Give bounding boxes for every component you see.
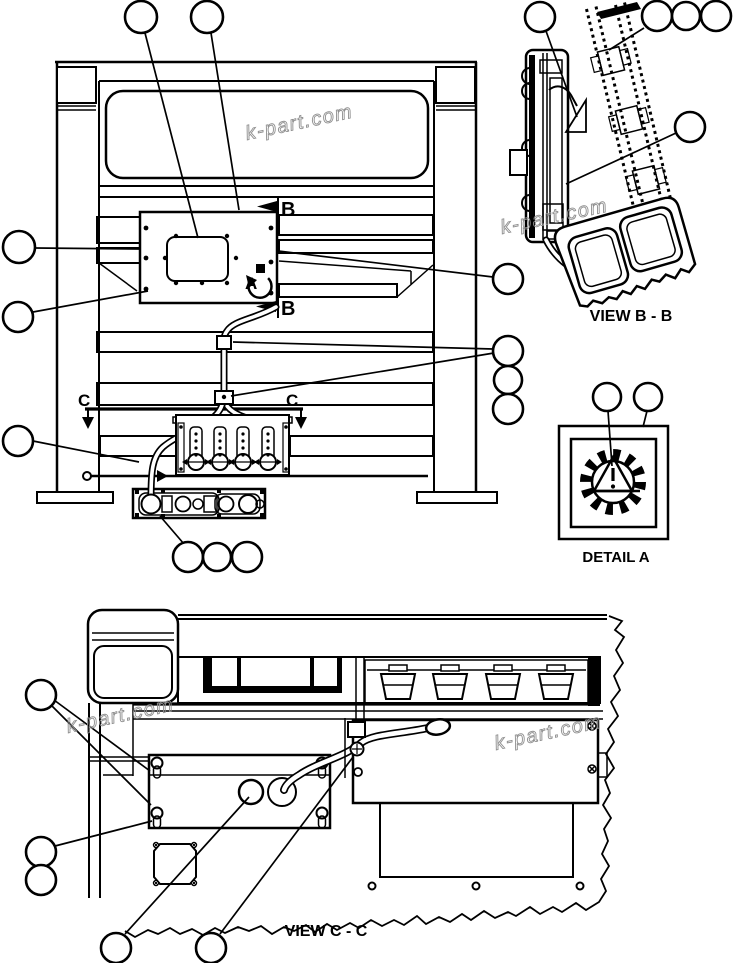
callout-balloon[interactable] [173, 542, 203, 572]
cc-plate-hole [239, 780, 263, 804]
cc-right-panel [353, 720, 607, 890]
gear-warning-symbol [586, 455, 640, 509]
rail-right-3 [279, 284, 397, 297]
rail-right-1 [279, 215, 433, 235]
view-bb: VIEW B - B [510, 2, 698, 325]
lower-rail-right [290, 436, 433, 456]
rail-left-2 [97, 248, 140, 263]
left-post-cap-lines [57, 106, 96, 110]
callout-balloon[interactable] [493, 394, 523, 424]
callout-balloon[interactable] [26, 837, 56, 867]
right-foot [417, 492, 497, 503]
strip-hose-port [142, 495, 161, 514]
detail-a-target [256, 264, 265, 273]
cc-clamp-screw-small [354, 768, 362, 776]
hose-clamp-upper [217, 336, 231, 349]
section-c-letter-left: C [78, 391, 90, 410]
bb-side-tab [510, 150, 527, 175]
cc-top-rail [178, 615, 607, 619]
callout-balloon[interactable] [125, 1, 157, 33]
rail-left-ramp [99, 263, 137, 291]
callout-balloon[interactable] [3, 302, 33, 332]
callout-balloon[interactable] [493, 336, 523, 366]
rail-left-1 [97, 217, 140, 243]
callout-balloon[interactable] [232, 542, 262, 572]
cc-band-bottom-lines [133, 711, 603, 719]
left-post-cap [57, 67, 96, 103]
callout-balloon[interactable] [701, 1, 731, 31]
section-c-arrow-right [295, 417, 307, 429]
callout-balloon[interactable] [3, 231, 35, 263]
cc-base-holes [369, 883, 584, 890]
watermark-main: k-part.com [243, 101, 355, 145]
view-cc-title: VIEW C - C [285, 923, 368, 940]
callout-balloon[interactable] [493, 264, 523, 294]
callout-balloon[interactable] [101, 933, 131, 963]
view-cc: VIEW C - C [52, 610, 624, 940]
bb-rail-brackets [590, 45, 668, 196]
cc-seat [88, 610, 178, 703]
callout-balloon[interactable] [26, 680, 56, 710]
axle-end-pin [83, 472, 91, 480]
frame-cross-rails [99, 186, 434, 197]
right-post-cap-lines [436, 106, 475, 110]
callout-balloon[interactable] [196, 933, 226, 963]
callout-balloon[interactable] [672, 2, 700, 30]
view-bb-title: VIEW B - B [590, 308, 673, 325]
cc-clamp-block [348, 722, 365, 737]
rail-right-2 [279, 240, 433, 253]
callout-balloon[interactable] [26, 865, 56, 895]
cc-mounting-plate [149, 755, 330, 828]
section-b-letter-top: B [281, 199, 295, 221]
parts-diagram-page: C C A B B [0, 0, 733, 963]
valve-assembly [173, 415, 292, 475]
callout-balloon[interactable] [593, 383, 621, 411]
callout-balloon[interactable] [3, 426, 33, 456]
callout-balloon[interactable] [634, 383, 662, 411]
detail-a-view: DETAIL A [559, 411, 668, 566]
cc-lower-box [380, 803, 573, 877]
section-c-arrow-left [82, 417, 94, 429]
section-b-letter-bottom: B [281, 298, 295, 320]
main-frame-view: C C A B B [33, 33, 497, 544]
cross-member-2 [97, 383, 433, 405]
callout-balloon[interactable] [675, 112, 705, 142]
callout-balloon[interactable] [494, 366, 522, 394]
cross-member-1 [97, 332, 433, 352]
callout-balloon[interactable] [191, 1, 223, 33]
callout-balloon[interactable] [525, 2, 555, 32]
right-post-cap [436, 67, 475, 103]
left-foot [37, 492, 113, 503]
section-c-letter-right: C [286, 391, 298, 410]
callout-balloon[interactable] [203, 543, 231, 571]
callout-balloon[interactable] [642, 1, 672, 31]
axle-marker [157, 470, 168, 482]
section-b-arrow-top [257, 201, 277, 212]
detail-a-letter: A [245, 274, 257, 293]
detail-a-title: DETAIL A [582, 549, 649, 566]
